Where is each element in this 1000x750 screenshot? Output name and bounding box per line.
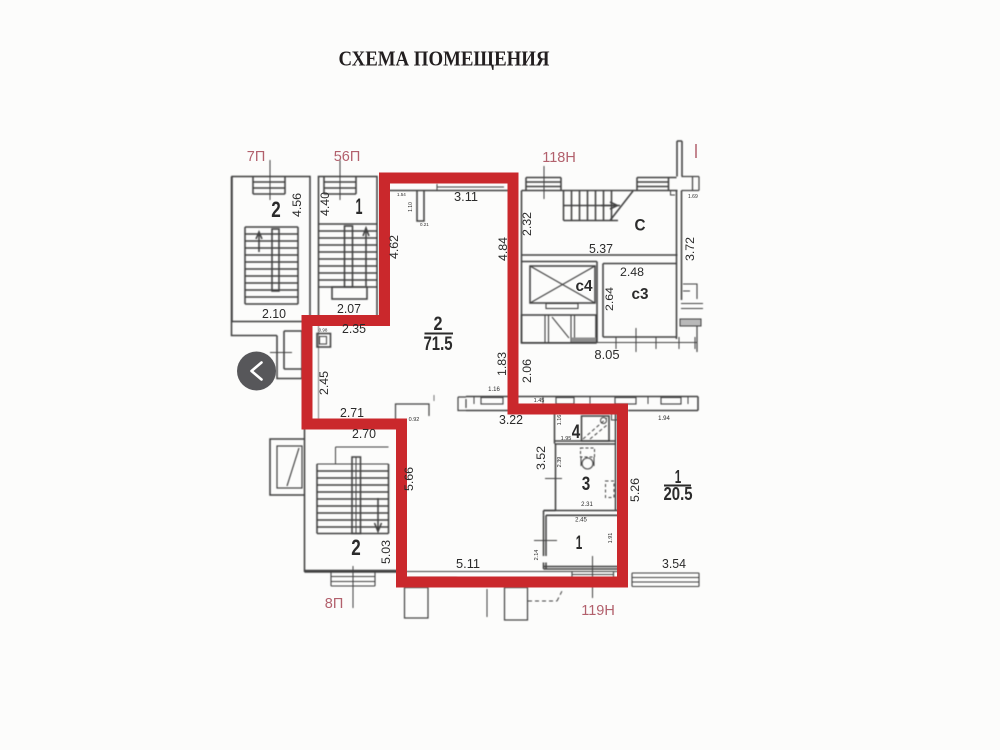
- svg-text:1.95: 1.95: [561, 436, 572, 442]
- svg-text:1.16: 1.16: [488, 387, 500, 393]
- svg-text:7П: 7П: [247, 149, 266, 165]
- svg-text:2.70: 2.70: [352, 427, 376, 441]
- svg-text:5.37: 5.37: [589, 242, 613, 256]
- svg-text:1.94: 1.94: [658, 416, 670, 422]
- svg-text:2.10: 2.10: [262, 307, 286, 321]
- svg-text:1.45: 1.45: [534, 398, 545, 404]
- svg-text:5.03: 5.03: [379, 540, 393, 564]
- svg-text:0.98: 0.98: [319, 328, 328, 333]
- svg-text:2: 2: [434, 313, 443, 335]
- svg-text:2.45: 2.45: [575, 518, 587, 524]
- svg-text:1: 1: [356, 194, 363, 219]
- svg-text:1.69: 1.69: [688, 194, 698, 200]
- svg-text:C: C: [635, 217, 646, 235]
- svg-text:5.26: 5.26: [630, 478, 642, 502]
- svg-text:2: 2: [271, 197, 281, 222]
- svg-text:1.91: 1.91: [608, 533, 614, 544]
- svg-text:c3: c3: [632, 286, 649, 303]
- svg-text:3.22: 3.22: [499, 413, 523, 427]
- svg-text:2.64: 2.64: [604, 287, 616, 311]
- svg-text:4.62: 4.62: [387, 235, 401, 259]
- svg-text:1: 1: [576, 533, 583, 554]
- svg-text:2.14: 2.14: [534, 550, 540, 561]
- svg-text:1.83: 1.83: [497, 352, 509, 376]
- svg-text:4.56: 4.56: [290, 193, 304, 217]
- svg-text:3.52: 3.52: [536, 446, 548, 470]
- svg-text:3.54: 3.54: [662, 557, 686, 571]
- svg-text:118Н: 118Н: [542, 150, 576, 166]
- svg-text:8П: 8П: [325, 596, 344, 612]
- svg-text:c4: c4: [576, 278, 593, 295]
- svg-text:2.07: 2.07: [337, 302, 361, 316]
- svg-text:2.31: 2.31: [581, 502, 593, 508]
- svg-text:2.48: 2.48: [620, 265, 644, 279]
- svg-text:1.16: 1.16: [557, 415, 563, 426]
- svg-text:1.54: 1.54: [397, 192, 406, 197]
- svg-text:5.11: 5.11: [456, 557, 480, 571]
- svg-text:2.32: 2.32: [520, 212, 534, 236]
- svg-text:СХЕМА ПОМЕЩЕНИЯ: СХЕМА ПОМЕЩЕНИЯ: [339, 47, 550, 71]
- svg-text:2: 2: [351, 535, 361, 560]
- svg-text:20.5: 20.5: [664, 484, 693, 504]
- svg-text:2.45: 2.45: [317, 371, 331, 395]
- svg-text:4.84: 4.84: [496, 237, 510, 261]
- svg-text:2.06: 2.06: [522, 359, 534, 383]
- svg-text:71.5: 71.5: [424, 333, 453, 355]
- svg-text:3.72: 3.72: [683, 237, 697, 261]
- svg-text:2.35: 2.35: [342, 322, 366, 336]
- svg-text:2.71: 2.71: [340, 406, 364, 420]
- svg-text:1.10: 1.10: [408, 202, 414, 212]
- svg-text:4.40: 4.40: [318, 192, 332, 216]
- svg-text:0.21: 0.21: [420, 222, 429, 227]
- svg-text:4: 4: [572, 422, 581, 443]
- svg-text:5.66: 5.66: [402, 467, 416, 491]
- svg-text:56П: 56П: [334, 149, 361, 165]
- svg-text:3: 3: [582, 474, 591, 495]
- svg-text:2.39: 2.39: [557, 457, 563, 468]
- svg-text:119Н: 119Н: [581, 603, 615, 619]
- svg-text:0.92: 0.92: [409, 417, 420, 423]
- svg-text:8.05: 8.05: [594, 347, 619, 362]
- svg-text:3.11: 3.11: [454, 190, 478, 204]
